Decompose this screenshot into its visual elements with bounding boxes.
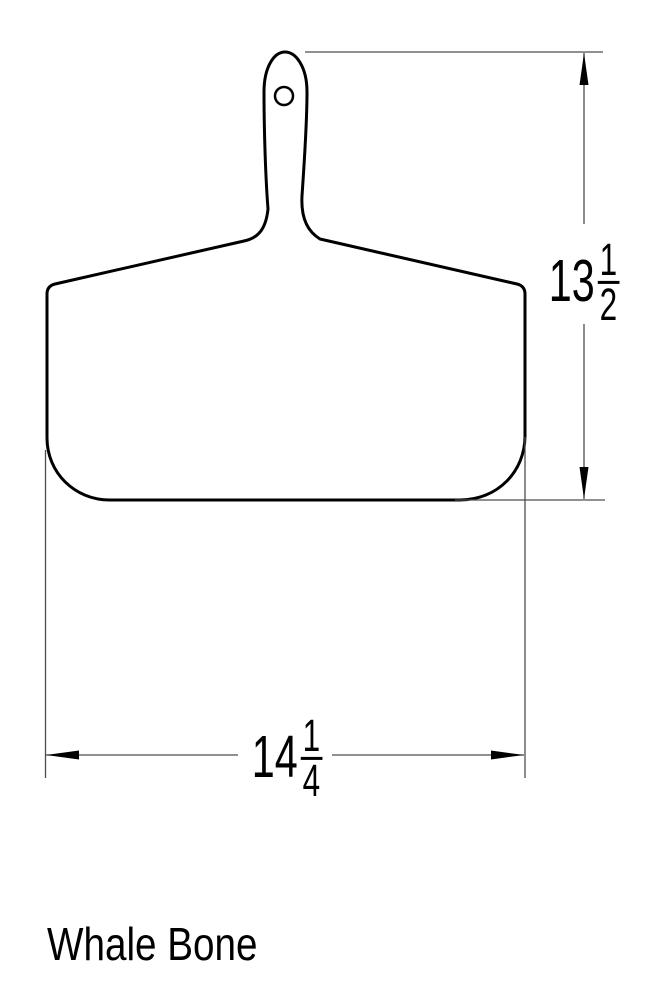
width-dimension-denominator: 4: [303, 760, 321, 798]
drawing-title: Whale Bone: [47, 919, 258, 970]
outline-group: [47, 52, 525, 500]
height-dimension-fraction: 1 2: [598, 240, 620, 322]
width-dimension-label: 14 1 4: [252, 716, 322, 798]
dimension-lines: [46, 52, 606, 778]
technical-drawing-canvas: 13 1 2 14 1 4 Whale Bone: [0, 0, 658, 1000]
height-dimension-numerator: 1: [598, 240, 620, 284]
width-arrowhead-left: [46, 751, 79, 760]
height-dimension-whole: 13: [549, 252, 595, 311]
height-arrowhead-up: [580, 53, 589, 85]
width-arrowhead-right: [491, 751, 524, 760]
drawing-svg: [0, 0, 658, 1000]
width-dimension-numerator: 1: [301, 716, 323, 760]
whale-bone-outline: [47, 52, 525, 500]
width-dimension-whole: 14: [252, 728, 298, 787]
hanging-hole: [275, 87, 293, 105]
width-dimension-fraction: 1 4: [301, 716, 323, 798]
height-dimension-label: 13 1 2: [549, 240, 619, 322]
dimension-arrowheads: [46, 53, 589, 760]
height-arrowhead-down: [580, 467, 589, 499]
height-dimension-denominator: 2: [600, 284, 618, 322]
